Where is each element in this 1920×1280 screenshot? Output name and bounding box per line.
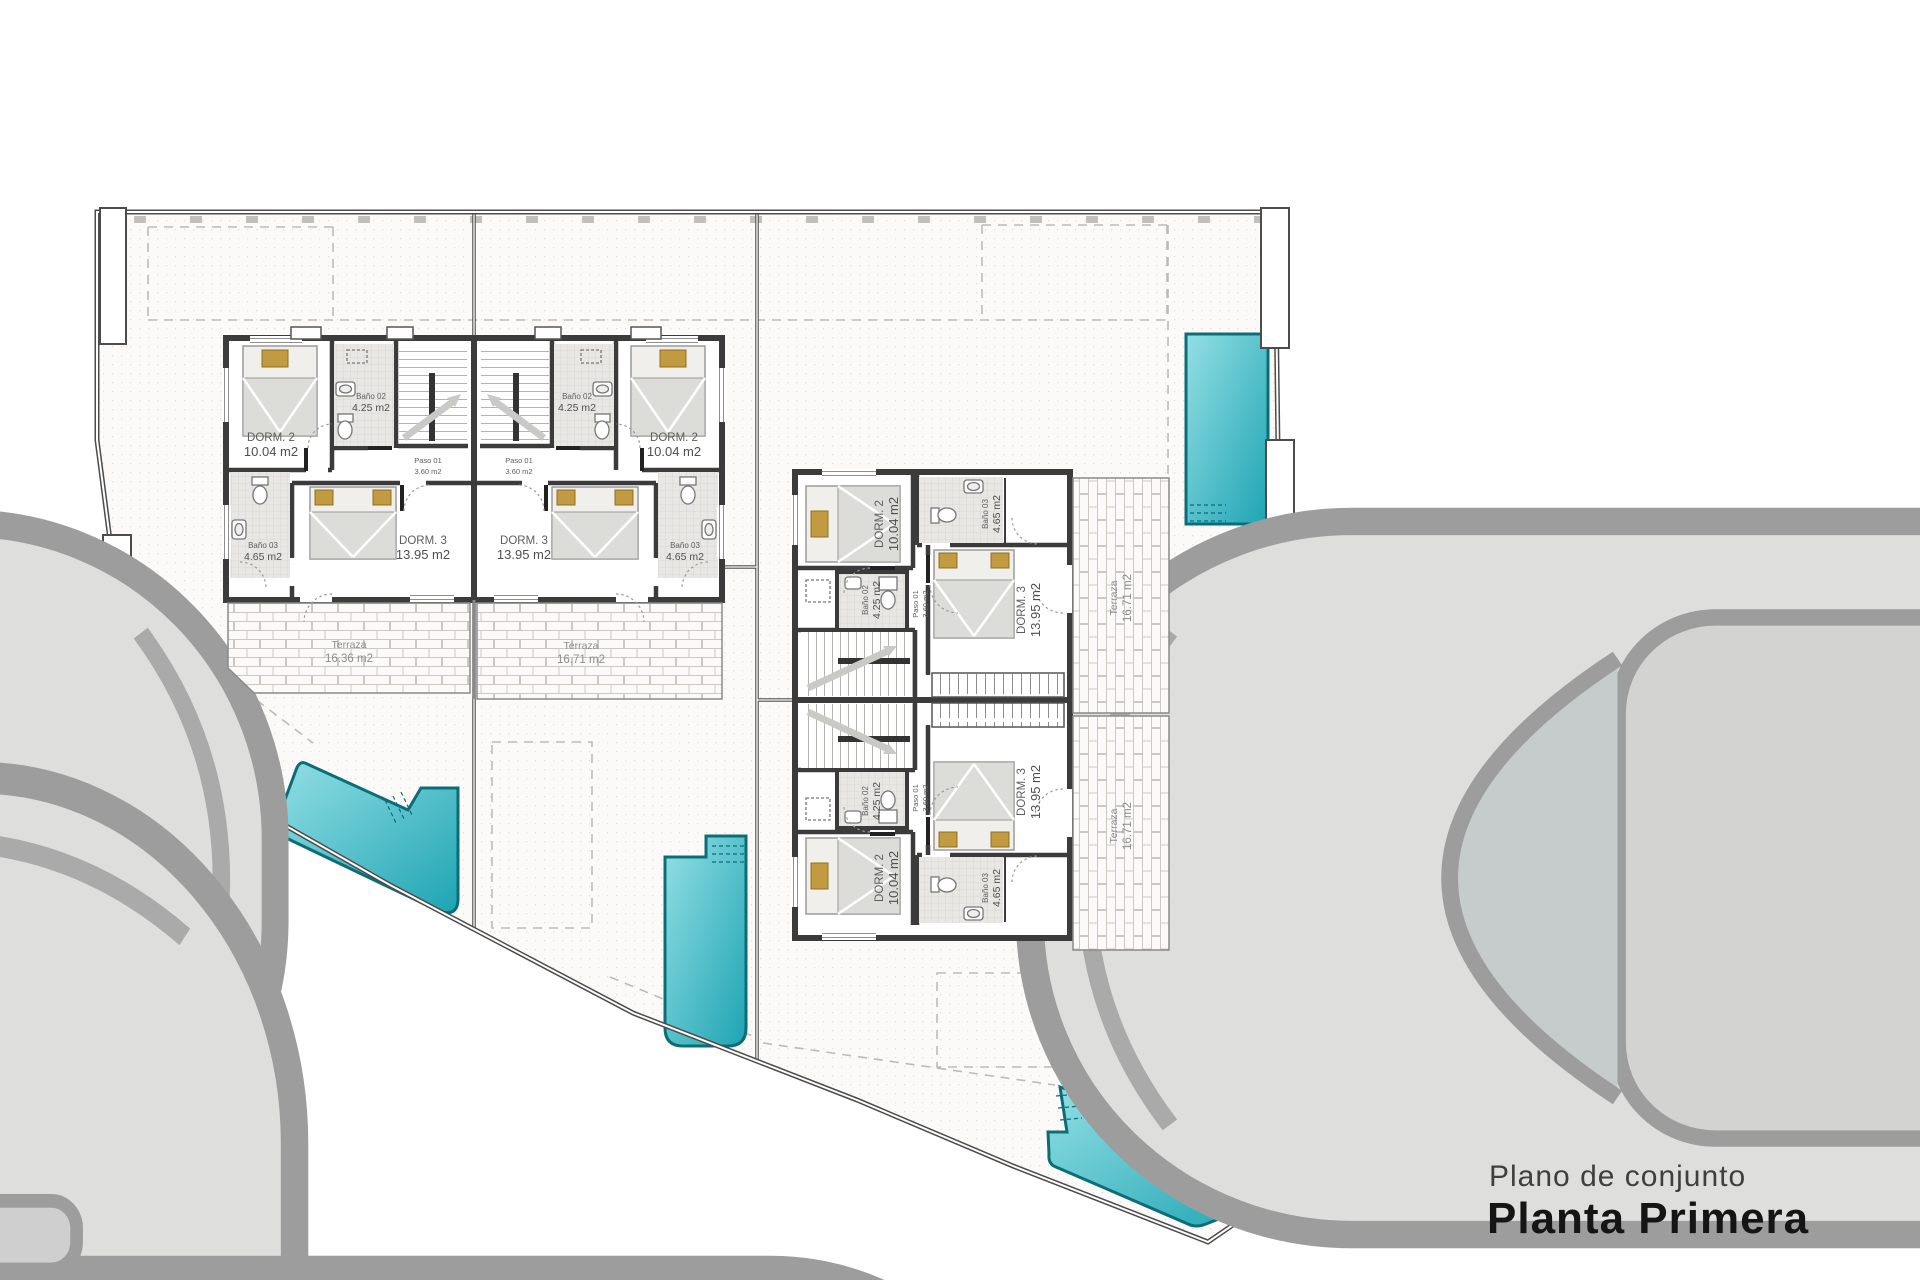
label-unit-c-paso-name: Paso 01 [911, 590, 920, 618]
label-unit-c-paso-area: 3.60 m2 [921, 590, 930, 617]
label-unit-a-dorm3-area: 13.95 m2 [396, 547, 450, 562]
label-unit-d-paso-name: Paso 01 [911, 784, 920, 812]
label-unit-a-paso-name: Paso 01 [414, 456, 442, 465]
label-unit-b-bano3-area: 4.65 m2 [666, 551, 704, 563]
label-terrace-d-name: Terraza [1108, 808, 1120, 843]
terrace-unit-c [1073, 478, 1169, 713]
label-unit-b-paso-area: 3.60 m2 [505, 467, 532, 476]
pool-right-top [1186, 334, 1268, 524]
label-unit-a-bano3-name: Baño 03 [248, 541, 278, 550]
label-unit-d-dorm2-area: 10.04 m2 [886, 851, 901, 905]
stairs-unit-b [481, 346, 549, 443]
label-unit-c-dorm3-name: DORM. 3 [1016, 586, 1028, 634]
label-unit-c-dorm2-name: DORM. 2 [874, 500, 886, 548]
label-unit-d-bano2-name: Baño 02 [861, 786, 870, 816]
label-terrace-d-area: 16.71 m2 [1122, 802, 1134, 850]
label-unit-d-bano2-area: 4.25 m2 [871, 782, 883, 820]
label-unit-a-paso-area: 3.60 m2 [414, 467, 441, 476]
label-terrace-c-area: 16.71 m2 [1122, 574, 1134, 622]
label-terrace-a-area: 16.36 m2 [325, 653, 373, 665]
label-unit-a-dorm2-name: DORM. 2 [247, 432, 295, 444]
label-unit-d-dorm2-name: DORM. 2 [874, 854, 886, 902]
label-unit-a-bano2-area: 4.25 m2 [352, 402, 390, 414]
bed-dorm2-unit-b [631, 346, 705, 436]
bed-dorm3-unit-b [552, 487, 638, 559]
terrace-unit-d [1073, 716, 1169, 950]
label-unit-d-bano3-area: 4.65 m2 [991, 869, 1003, 907]
label-unit-c-dorm2-area: 10.04 m2 [886, 497, 901, 551]
building-right [791, 469, 1169, 950]
closet-unit-c [932, 673, 1064, 697]
top-wall-ticks [115, 216, 1260, 224]
site-plan-drawing: DORM. 2 10.04 m2 Baño 02 4.25 m2 Paso 01… [0, 0, 1920, 1280]
label-unit-a-dorm2-area: 10.04 m2 [244, 444, 298, 459]
stairs-unit-d [801, 704, 913, 768]
party-wall-right-building [795, 697, 1070, 703]
bed-dorm2-unit-a [243, 346, 317, 436]
bed-dorm3-unit-d [934, 762, 1014, 850]
floorplan-page: { "title": {"line1": "Plano de conjunto"… [0, 0, 1920, 1280]
label-unit-a-dorm3-name: DORM. 3 [399, 535, 447, 547]
label-unit-b-bano3-name: Baño 03 [670, 541, 700, 550]
building-left [222, 327, 726, 699]
label-unit-d-bano3-name: Baño 03 [981, 873, 990, 903]
party-wall-left-building [471, 338, 477, 600]
label-terrace-a-name: Terraza [331, 639, 366, 651]
terrace-unit-b [477, 603, 722, 699]
closet-unit-d [932, 703, 1064, 727]
label-unit-d-paso-area: 3.60 m2 [921, 784, 930, 811]
label-unit-b-bano2-area: 4.25 m2 [558, 402, 596, 414]
label-unit-c-bano2-area: 4.25 m2 [871, 581, 883, 619]
label-unit-a-bano2-name: Baño 02 [356, 392, 386, 401]
label-unit-d-dorm3-area: 13.95 m2 [1028, 765, 1043, 819]
bed-dorm3-unit-c [934, 550, 1014, 638]
pool-middle [665, 836, 746, 1046]
label-unit-c-dorm3-area: 13.95 m2 [1028, 583, 1043, 637]
stairs-unit-c [801, 632, 913, 696]
label-unit-b-dorm3-name: DORM. 3 [500, 535, 548, 547]
label-unit-c-bano2-name: Baño 02 [861, 585, 870, 615]
label-unit-b-dorm3-area: 13.95 m2 [497, 547, 551, 562]
label-terrace-b-area: 16.71 m2 [557, 654, 605, 666]
label-unit-c-bano3-area: 4.65 m2 [991, 495, 1003, 533]
label-unit-d-dorm3-name: DORM. 3 [1016, 768, 1028, 816]
bed-dorm3-unit-a [310, 487, 396, 559]
label-unit-a-bano3-area: 4.65 m2 [244, 551, 282, 563]
plan-title: Planta Primera [1487, 1194, 1809, 1243]
label-terrace-c-name: Terraza [1108, 580, 1120, 615]
label-unit-b-dorm2-name: DORM. 2 [650, 432, 698, 444]
label-unit-b-bano2-name: Baño 02 [562, 392, 592, 401]
label-unit-b-paso-name: Paso 01 [505, 456, 533, 465]
stairs-unit-a [399, 346, 467, 443]
plan-subtitle: Plano de conjunto [1489, 1160, 1746, 1193]
label-terrace-b-name: Terraza [563, 640, 598, 652]
label-unit-b-dorm2-area: 10.04 m2 [647, 444, 701, 459]
label-unit-c-bano3-name: Baño 03 [981, 499, 990, 529]
